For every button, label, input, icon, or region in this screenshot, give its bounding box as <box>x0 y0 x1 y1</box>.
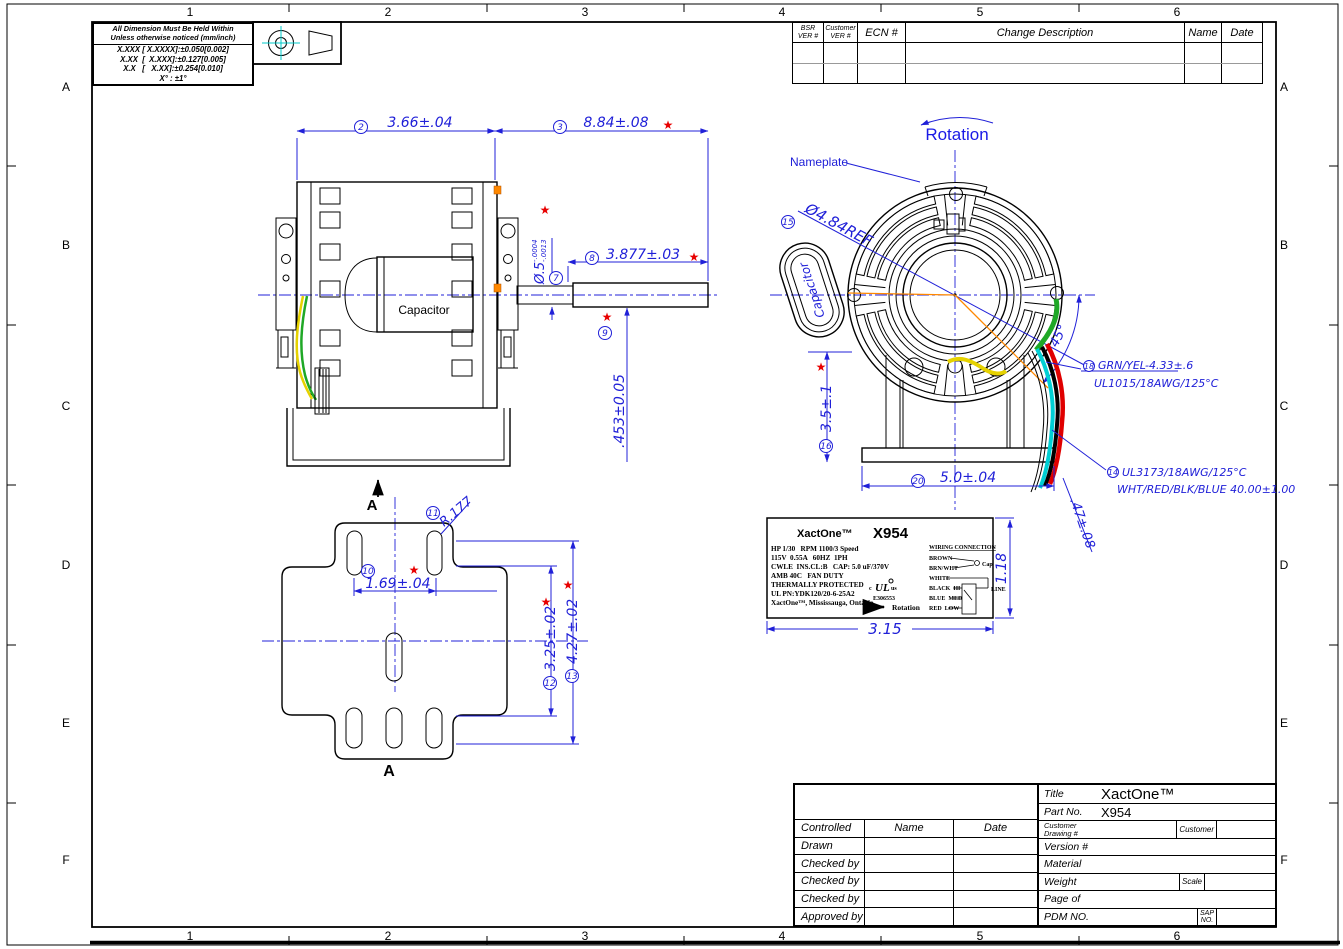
balloon-14: 14 <box>1108 467 1119 478</box>
nameplate-callout: Nameplate <box>790 155 848 169</box>
header-customer-ver: CustomerVER # <box>824 23 858 42</box>
zone-col-label: 5 <box>977 929 984 943</box>
balloon-15: 15 <box>782 216 795 229</box>
dim-slot-spacing: 1.69±.04 <box>365 576 430 592</box>
spec-line: XactOne™, Mississauga, Ontario <box>771 599 874 607</box>
ground-wire-spec: UL1015/18AWG/125°C <box>1094 377 1219 390</box>
revision-empty-row <box>793 43 1262 63</box>
critical-star: ★ <box>563 578 574 592</box>
header-change-description: Change Description <box>906 23 1185 42</box>
part-info-section: Title XactOne™ Part No. X954 CustomerDra… <box>1039 785 1275 925</box>
svg-text:2: 2 <box>358 123 364 133</box>
zone-row-label: E <box>1280 716 1288 730</box>
svg-text:BRN/WHT: BRN/WHT <box>929 566 958 572</box>
svg-text:7: 7 <box>553 274 559 284</box>
svg-text:UL: UL <box>875 582 890 594</box>
nameplate-model: X954 <box>873 525 909 542</box>
critical-star: ★ <box>689 250 700 264</box>
critical-star: ★ <box>663 118 674 132</box>
svg-text:16: 16 <box>820 442 832 452</box>
svg-text:8: 8 <box>589 254 595 264</box>
svg-text:20: 20 <box>912 477 924 487</box>
cone-symbol <box>309 31 332 55</box>
vent-spoke <box>944 365 947 396</box>
bracket-section-view: A 10 ★ 1.69±.04 11 R.177 ★ 3.25±.02 12 ★… <box>262 494 588 780</box>
terminal-pad <box>494 186 501 194</box>
nameplate-detail: XactOne™ X954 HP 1/30 RPM 1100/3 Speed 1… <box>767 518 1014 638</box>
balloon-13: 13 <box>566 670 579 683</box>
checked-row: Checked by <box>795 855 1037 873</box>
svg-text:Ø4.84REF: Ø4.84REF <box>801 199 876 250</box>
critical-star: ★ <box>540 203 551 217</box>
capacitor-label: Capacitor <box>398 303 449 317</box>
dim-base: 5.0±.04 <box>940 470 996 486</box>
checked-row: Checked by <box>795 873 1037 891</box>
stator-vents <box>320 188 472 376</box>
svg-text:9: 9 <box>602 329 608 339</box>
svg-text:.47±.08: .47±.08 <box>1066 496 1097 550</box>
svg-text:12: 12 <box>544 679 556 689</box>
svg-text:3.5±.1: 3.5±.1 <box>819 385 835 432</box>
lead-wire-label: UL3173/18AWG/125°C <box>1122 466 1247 479</box>
pdm-row: PDM NO. SAPNO. <box>1039 909 1275 925</box>
dim-flat: .453±0.05 <box>612 374 628 448</box>
zone-col-label: 1 <box>187 929 194 943</box>
spec-line: 115V 0.55A 60HZ 1PH <box>771 554 848 562</box>
version-row: Version # <box>1039 839 1275 856</box>
part-row: Part No. X954 <box>1039 804 1275 821</box>
dim-lead: .47±.08 <box>1066 496 1097 550</box>
vent-spoke <box>1025 302 1056 305</box>
balloon-16: 16 <box>820 440 833 453</box>
dim-width: 3.66±.04 <box>387 115 452 131</box>
svg-text:3: 3 <box>557 123 563 133</box>
vent-spoke <box>1025 284 1056 287</box>
svg-text:13: 13 <box>566 672 578 682</box>
bracket-slots <box>346 531 442 748</box>
header-bsr-ver: BSRVER # <box>793 23 824 42</box>
header-date: Date <box>1222 23 1262 42</box>
svg-text:4.27±.02: 4.27±.02 <box>565 599 581 664</box>
tolerance-row: X.XX [ X.XXX]:±0.127[0.005] <box>94 55 252 65</box>
view-label: A <box>383 763 395 780</box>
dim-shaft-len: 3.877±.03 <box>606 247 680 263</box>
capacitor-oval-label: Capacitor <box>796 259 827 319</box>
nameplate-dim-height: 1.18 <box>994 553 1010 584</box>
belly-band <box>287 408 510 466</box>
vent-slot <box>856 314 935 393</box>
tolerance-note-1: All Dimension Must Be Held Within <box>94 24 252 33</box>
zone-row-label: D <box>62 558 71 572</box>
svg-text:3.25±.02: 3.25±.02 <box>543 606 559 671</box>
spec-line: AMB 40C FAN DUTY <box>771 572 845 580</box>
vent-spoke <box>855 284 886 287</box>
zone-col-label: 6 <box>1174 5 1181 19</box>
side-view-dimensions: 2 3.66±.04 3 8.84±.08 ★ ★ Ø.5 -.0004 -.0… <box>297 115 708 462</box>
controlled-label: Controlled <box>795 820 865 837</box>
lead-wire-spec: WHT/RED/BLK/BLUE 40.00±1.00 <box>1117 483 1295 496</box>
dim-outer: 4.27±.02 <box>565 599 581 664</box>
capacitor-cylinder: Capacitor <box>345 257 473 332</box>
revision-empty-row <box>793 64 1262 83</box>
zone-row-label: D <box>1280 558 1289 572</box>
name-header: Name <box>865 820 954 837</box>
zone-col-label: 2 <box>385 929 392 943</box>
vent-spoke <box>855 302 886 305</box>
svg-text:BLUE MED: BLUE MED <box>929 596 963 602</box>
svg-text:RED LOW: RED LOW <box>929 606 959 612</box>
svg-text:Ø.5: Ø.5 <box>533 262 548 285</box>
dim-radius: R.177 <box>437 494 476 530</box>
approved-row: Approved by <box>795 908 1037 925</box>
zone-col-label: 5 <box>977 5 984 19</box>
drawing-title: XactOne™ <box>1101 786 1275 803</box>
vent-spoke <box>962 365 965 396</box>
zone-row-label: E <box>62 716 70 730</box>
zone-row-label: F <box>62 853 69 867</box>
dim-length: 8.84±.08 <box>583 115 648 131</box>
svg-text:BLACK HI: BLACK HI <box>929 586 961 592</box>
header-name: Name <box>1185 23 1222 42</box>
svg-text:14: 14 <box>1108 468 1118 477</box>
header-ecn: ECN # <box>858 23 906 42</box>
nameplate-brand: XactOne™ <box>797 528 853 540</box>
svg-text:LINE: LINE <box>991 587 1006 593</box>
zone-row-label: A <box>1280 80 1288 94</box>
zone-col-label: 3 <box>582 5 589 19</box>
balloon-18: 18 <box>1084 361 1095 372</box>
ul-file-number: E306553 <box>873 596 895 602</box>
part-number: X954 <box>1101 805 1275 820</box>
rotation-label: Rotation <box>925 125 988 144</box>
zone-col-label: 4 <box>779 929 786 943</box>
zone-row-label: B <box>1280 238 1288 252</box>
weight-row: Weight Scale <box>1039 874 1275 891</box>
checked-row: Checked by <box>795 891 1037 909</box>
nameplate-tab <box>925 183 987 187</box>
critical-star: ★ <box>409 563 420 577</box>
balloon-12: 12 <box>544 677 557 690</box>
zone-row-label: C <box>1280 399 1289 413</box>
dim-inner: 3.25±.02 <box>543 606 559 671</box>
zone-row-label: C <box>62 399 71 413</box>
ground-wire-label: GRN/YEL-4.33±.6 <box>1098 359 1193 372</box>
revision-header-row: BSRVER # CustomerVER # ECN # Change Desc… <box>793 23 1262 43</box>
spec-line: THERMALLY PROTECTED <box>771 581 864 589</box>
svg-text:-.0013: -.0013 <box>540 239 548 262</box>
section-label: A <box>367 497 378 514</box>
wire-loom <box>315 368 329 414</box>
balloon-2: 2 <box>355 121 368 134</box>
tolerance-note-2: Unless otherwise noticed (mm/inch) <box>94 33 252 45</box>
balloon-20: 20 <box>912 475 925 488</box>
customer-drawing-row: CustomerDrawing # Customer <box>1039 821 1275 838</box>
zone-col-label: 6 <box>1174 929 1181 943</box>
svg-text:Cap: Cap <box>982 562 993 568</box>
spec-line: HP 1/30 RPM 1100/3 Speed <box>771 545 858 553</box>
nameplate-dim-width: 3.15 <box>868 620 901 638</box>
signoff-blank <box>795 785 1037 820</box>
mounting-base <box>862 355 1054 462</box>
material-row: Material <box>1039 856 1275 873</box>
left-mount-plate <box>276 218 296 368</box>
vent-slot <box>974 196 1053 275</box>
rotation-arrow <box>921 117 993 125</box>
projection-symbol <box>253 22 341 64</box>
balloon-7: 7 <box>550 272 563 285</box>
svg-text:us: us <box>891 586 897 592</box>
critical-star: ★ <box>816 360 827 374</box>
svg-text:R.177: R.177 <box>437 494 476 530</box>
date-header: Date <box>954 820 1037 837</box>
svg-text:WIRING CONNECTION: WIRING CONNECTION <box>929 545 997 551</box>
zone-col-label: 4 <box>779 5 786 19</box>
title-block: Controlled Name Date Drawn Checked by Ch… <box>793 783 1277 927</box>
page-row: Page of <box>1039 891 1275 908</box>
sap-label: SAPNO. <box>1197 909 1217 925</box>
drawn-row: Drawn <box>795 838 1037 856</box>
capacitor-oval: Capacitor <box>773 237 850 344</box>
zone-row-label: F <box>1280 853 1287 867</box>
title-row: Title XactOne™ <box>1039 785 1275 804</box>
tolerance-row: X.X [ X.XX]:±0.254[0.010] <box>94 64 252 74</box>
dim-height: 3.5±.1 <box>819 385 835 432</box>
svg-text:1.18: 1.18 <box>994 553 1010 584</box>
dim-shaft-dia: Ø.5 -.0004 -.0013 <box>531 239 548 285</box>
svg-text:15: 15 <box>782 218 794 228</box>
signoff-section: Controlled Name Date Drawn Checked by Ch… <box>795 785 1039 925</box>
svg-text:WHITE: WHITE <box>929 576 950 582</box>
zone-col-label: 2 <box>385 5 392 19</box>
motor-front-view: Rotation Nameplate <box>770 117 1295 552</box>
svg-text:18: 18 <box>1084 362 1094 371</box>
balloon-3: 3 <box>554 121 567 134</box>
tolerance-row: X.XXX [ X.XXXX]:±0.050[0.002] <box>94 45 252 55</box>
revision-table: BSRVER # CustomerVER # ECN # Change Desc… <box>792 22 1263 84</box>
zone-row-label: A <box>62 80 70 94</box>
svg-text:-.0004: -.0004 <box>531 239 539 262</box>
tolerance-block: All Dimension Must Be Held Within Unless… <box>92 22 254 86</box>
spec-line: UL PN:YDK120/20-6-25A2 <box>771 590 855 598</box>
nameplate-rotation: Rotation <box>892 603 921 612</box>
svg-text:c: c <box>869 586 872 592</box>
critical-star: ★ <box>602 310 613 324</box>
nameplate-leader <box>846 163 920 182</box>
signoff-header-row: Controlled Name Date <box>795 820 1037 838</box>
customer-label: Customer <box>1176 821 1217 837</box>
zone-col-label: 1 <box>187 5 194 19</box>
dim-bolt-circle: Ø4.84REF <box>801 199 876 250</box>
spec-line: CWLE INS.CL:B CAP: 5.0 uF/370V <box>771 563 890 571</box>
balloon-9: 9 <box>599 327 612 340</box>
svg-text:.453±0.05: .453±0.05 <box>612 374 628 448</box>
zone-row-label: B <box>62 238 70 252</box>
balloon-8: 8 <box>586 252 599 265</box>
tolerance-row: X° : ±1° <box>94 74 252 84</box>
scale-label: Scale <box>1179 874 1205 890</box>
terminal-pad <box>494 284 501 292</box>
motor-side-view: Capacitor A 2 3.66±.04 3 8.84±.08 ★ <box>258 115 718 514</box>
zone-col-label: 3 <box>582 929 589 943</box>
drawing-sheet: 1 2 3 4 5 6 1 2 3 4 5 6 A B C D E F A B … <box>0 0 1343 949</box>
svg-text:BROWN: BROWN <box>929 556 953 562</box>
